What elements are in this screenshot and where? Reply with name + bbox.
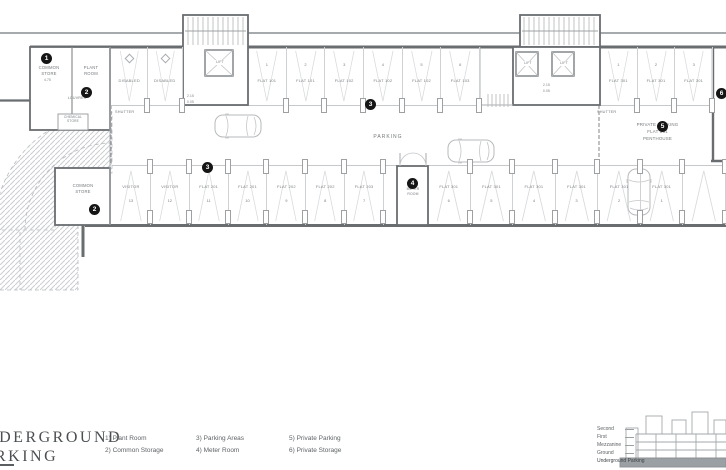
bay-chevron — [518, 169, 550, 223]
bay-number: 1 — [600, 62, 637, 67]
parking-bay: FLAT 301 1 — [641, 167, 684, 225]
bay-chevron — [117, 169, 145, 223]
bay-chevron — [195, 169, 223, 223]
level-marker: 2.15 — [543, 83, 550, 87]
bay-label: FLAT 202 — [267, 184, 305, 189]
sheet-title-line1: UNDERGROUND — [0, 428, 122, 447]
bay-label: FLAT 301 — [428, 184, 470, 189]
parking-bay: 3 FLAT 301 — [675, 47, 713, 105]
bay-label: FLAT 102 — [403, 78, 441, 83]
bay-label: FLAT 301 — [641, 184, 683, 189]
parking-bays-top-right: 1 FLAT 301 2 FLAT 301 3 FLAT 301 — [600, 47, 713, 105]
parking-bay: 5 FLAT 102 — [403, 47, 442, 105]
keynote-3-parking-area-b: 3 — [365, 99, 376, 110]
legend-column-1: 1) Plant Room2) Common Storage — [105, 433, 164, 457]
legend-column-2: 3) Parking Areas4) Meter Room — [196, 433, 244, 457]
bay-label: FLAT 301 — [600, 78, 637, 83]
keynote-3-parking-area: 3 — [202, 162, 213, 173]
sheet-title: UNDERGROUND PARKING — [0, 428, 122, 466]
level-key-label: Second — [597, 425, 645, 433]
bay-chevron — [234, 169, 262, 223]
parking-bay: 4 FLAT 102 — [364, 47, 403, 105]
room-label-plant-room: PLANT ROOM — [80, 65, 102, 76]
bay-label: FLAT 201 — [229, 184, 267, 189]
level-key-label: Mezzanine — [597, 441, 645, 449]
bay-chevron — [311, 169, 339, 223]
bay-chevron — [605, 49, 632, 103]
legend-item: 5) Private Parking — [289, 433, 341, 445]
bay-chevron — [688, 169, 720, 223]
parking-bay: FLAT 301 6 — [428, 167, 471, 225]
keynote-4-meter-room: 4 — [407, 178, 418, 189]
legend-item: 1) Plant Room — [105, 433, 164, 445]
stair-core-right — [480, 15, 600, 107]
bay-label: FLAT 203 — [345, 184, 383, 189]
parking-bay: 2 FLAT 101 — [287, 47, 326, 105]
lift-label: LIFT — [212, 60, 228, 65]
bay-label: FLAT 301 — [675, 78, 712, 83]
parking-bay: 1 FLAT 301 — [600, 47, 638, 105]
parking-bay: 3 FLAT 102 — [325, 47, 364, 105]
parking-bay: FLAT 301 3 — [556, 167, 599, 225]
legend-item: 4) Meter Room — [196, 445, 244, 457]
bay-chevron — [292, 49, 320, 103]
bay-chevron — [476, 169, 508, 223]
keynote-2-common-storage: 2 — [81, 87, 92, 98]
parking-bay: FLAT 203 7 — [345, 167, 384, 225]
bay-chevron — [603, 169, 635, 223]
bay-chevron — [156, 169, 184, 223]
bay-label: FLAT 102 — [364, 78, 402, 83]
bay-chevron — [253, 49, 281, 103]
sheet-title-line2: PARKING — [0, 447, 122, 466]
level-marker: 0.05 — [543, 89, 550, 93]
bay-label: FLAT 301 — [471, 184, 513, 189]
bay-number: 7 — [345, 198, 383, 203]
parking-bay: FLAT 201 10 — [229, 167, 268, 225]
lift-label: LIFT — [556, 61, 572, 66]
shutter-lines — [111, 105, 599, 165]
keynote-1-plant-room: 1 — [41, 53, 52, 64]
car-icon — [215, 114, 261, 138]
parking-bay: 2 FLAT 301 — [638, 47, 676, 105]
bay-number: 12 — [151, 198, 189, 203]
keynote-2-common-storage-b: 2 — [89, 204, 100, 215]
parking-bay: FLAT 201 11 — [190, 167, 229, 225]
room-label-common-store-top: COMMON STORE — [37, 65, 61, 76]
bay-number: 3 — [675, 62, 712, 67]
legend-column-3: 5) Private Parking6) Private Storage — [289, 433, 341, 457]
bay-chevron — [330, 49, 358, 103]
legend-item: 2) Common Storage — [105, 445, 164, 457]
bay-number: 1 — [248, 62, 286, 67]
level-key-labels: SecondFirstMezzanineGroundUnderground Pa… — [597, 425, 645, 465]
bay-chevron — [446, 49, 474, 103]
level-key-label: First — [597, 433, 645, 441]
parking-bays-bottom-left: VISITOR 13 VISITOR 12 FLAT 201 11 FLAT 2… — [112, 167, 384, 225]
parking-bays-top-middle: 1 FLAT 101 2 FLAT 101 3 FLAT 102 4 FLAT … — [248, 47, 480, 105]
bay-number: 3 — [325, 62, 363, 67]
room-label-shutter-left: SHUTTER — [115, 110, 134, 115]
bay-number: 4 — [513, 198, 555, 203]
bay-chevron — [350, 169, 378, 223]
bay-chevron — [646, 169, 678, 223]
scale-mark — [0, 464, 14, 466]
area-label-private-parking-penthouse: PENTHOUSE — [630, 136, 685, 142]
level-marker: 0.05 — [187, 100, 194, 104]
keynote-5-private-parking: 5 — [657, 121, 668, 132]
bay-number: 2 — [598, 198, 640, 203]
parking-bay: FLAT 301 2 — [598, 167, 641, 225]
parking-bay: 1 FLAT 101 — [248, 47, 287, 105]
parking-bays-bottom-right: FLAT 301 6 FLAT 301 5 FLAT 301 4 FLAT 30… — [428, 167, 726, 225]
parking-bay: VISITOR 13 — [112, 167, 151, 225]
parking-bay — [683, 167, 726, 225]
bay-label: FLAT 101 — [287, 78, 325, 83]
bay-chevron — [433, 169, 465, 223]
bay-label: DISABLED — [112, 78, 147, 83]
legend-item: 3) Parking Areas — [196, 433, 244, 445]
level-key-label: Underground Parking — [597, 457, 645, 465]
bay-label: DISABLED — [148, 78, 183, 83]
level-key-label: Ground — [597, 449, 645, 457]
bay-number: 11 — [190, 198, 228, 203]
parking-bay: FLAT 301 5 — [471, 167, 514, 225]
bay-label: FLAT 201 — [190, 184, 228, 189]
bay-number: 6 — [428, 198, 470, 203]
bay-number: 9 — [267, 198, 305, 203]
bay-number: 1 — [641, 198, 683, 203]
parking-bay: VISITOR 12 — [151, 167, 190, 225]
keynote-6-private-storage: 6 — [716, 88, 726, 99]
lift-label: LIFT — [520, 61, 536, 66]
bay-label: FLAT 301 — [598, 184, 640, 189]
parking-bay: DISABLED — [112, 47, 148, 105]
bay-chevron — [408, 49, 436, 103]
bay-label: FLAT 301 — [513, 184, 555, 189]
level-marker: 2.15 — [187, 94, 194, 98]
room-label-shutter-right: SHUTTER — [597, 110, 616, 115]
bay-label: FLAT 102 — [325, 78, 363, 83]
bay-label: FLAT 101 — [248, 78, 286, 83]
bay-label: FLAT 301 — [638, 78, 675, 83]
area-label-parking: PARKING — [363, 134, 413, 141]
parking-bay: FLAT 202 8 — [306, 167, 345, 225]
parking-bay: 6 FLAT 103 — [441, 47, 480, 105]
bay-chevron — [680, 49, 707, 103]
bay-number: 13 — [112, 198, 150, 203]
room-label-common-store-bottom: COMMON STORE — [71, 183, 95, 194]
bay-number: 5 — [403, 62, 441, 67]
bay-number: 2 — [287, 62, 325, 67]
bay-label: VISITOR — [112, 184, 150, 189]
bay-number: 5 — [471, 198, 513, 203]
bay-number: 4 — [364, 62, 402, 67]
drawing-sheet: { "sheet": { "title_line1": "UNDERGROUND… — [0, 0, 726, 470]
parking-bay: FLAT 301 4 — [513, 167, 556, 225]
bay-number: 6 — [441, 62, 479, 67]
bay-label: FLAT 301 — [556, 184, 598, 189]
bay-number: 3 — [556, 198, 598, 203]
parking-bay: DISABLED — [148, 47, 184, 105]
bay-chevron — [369, 49, 397, 103]
bay-chevron — [272, 169, 300, 223]
room-label-chemical-store: CHEMICAL STORE — [60, 115, 86, 124]
bay-label: FLAT 103 — [441, 78, 479, 83]
bay-chevron — [643, 49, 670, 103]
bay-chevron — [561, 169, 593, 223]
parking-bay: FLAT 202 9 — [267, 167, 306, 225]
bay-number: 2 — [638, 62, 675, 67]
bay-number: 10 — [229, 198, 267, 203]
bay-label: VISITOR — [151, 184, 189, 189]
level-marker: 4.75 — [44, 78, 51, 82]
legend-item: 6) Private Storage — [289, 445, 341, 457]
bay-label: FLAT 202 — [306, 184, 344, 189]
parking-bays-disabled: DISABLED DISABLED — [112, 47, 183, 105]
bay-number: 8 — [306, 198, 344, 203]
